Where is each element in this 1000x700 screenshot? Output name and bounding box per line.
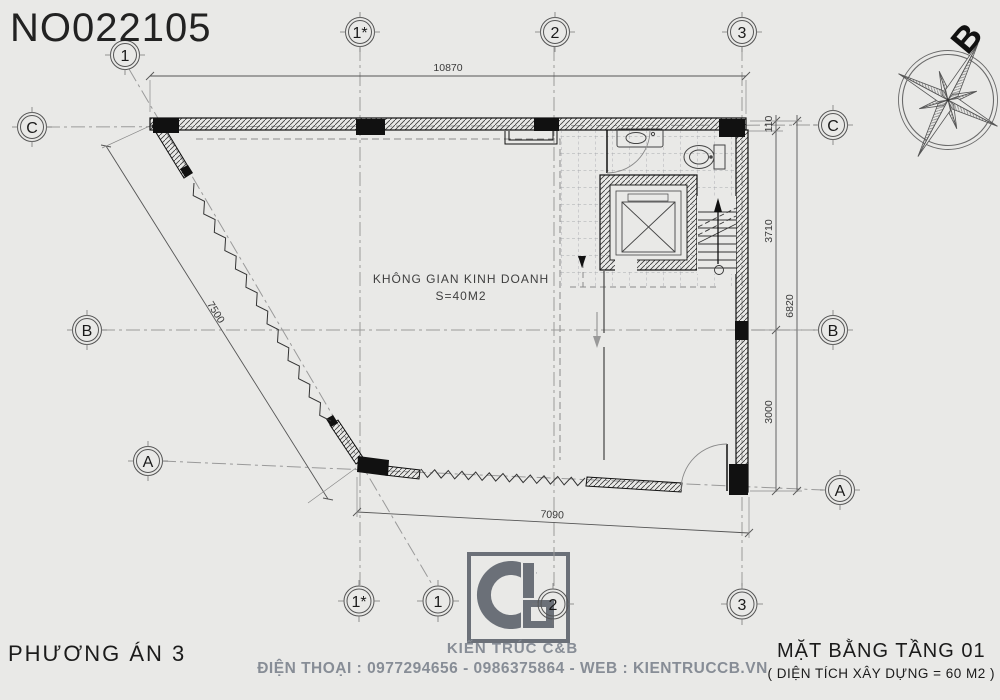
dimension-3000: 3000 xyxy=(763,400,775,424)
footer-center: KIẾN TRÚC C&B ĐIỆN THOẠI : 0977294656 - … xyxy=(240,640,785,678)
svg-text:B: B xyxy=(828,323,839,340)
grid-bubble-bottom-2: 2 xyxy=(532,583,574,625)
svg-text:2: 2 xyxy=(551,25,560,42)
upper-floor-projection xyxy=(196,139,560,460)
dimension-bottom xyxy=(353,477,753,538)
sheet-subtitle: ( DIỆN TÍCH XÂY DỰNG = 60 M2 ) xyxy=(768,666,995,681)
grid-bubble-top-2: 2 xyxy=(535,12,575,52)
axis-a xyxy=(162,461,823,490)
grid-bubble-top-3: 3 xyxy=(722,12,762,52)
grid-bubble-bottom-3: 3 xyxy=(721,583,763,625)
svg-text:A: A xyxy=(835,483,846,500)
grid-bubble-bottom-1: 1 xyxy=(417,580,459,622)
grid-bubble-right-c: C xyxy=(813,105,853,145)
scheme-label: PHƯƠNG ÁN 3 xyxy=(8,641,186,667)
grid-bubbles: 1 1* 2 3 1* xyxy=(12,12,860,625)
down-arrow-icon xyxy=(593,336,601,348)
sheet-title: MẶT BẰNG TẦNG 01 xyxy=(768,640,995,663)
dimension-3710: 3710 xyxy=(763,219,775,243)
sheet-title-block: MẶT BẰNG TẦNG 01 ( DIỆN TÍCH XÂY DỰNG = … xyxy=(768,640,995,681)
zigzag-bottom-facade xyxy=(421,469,585,486)
compass-rose: B xyxy=(869,15,1000,183)
svg-text:3: 3 xyxy=(738,25,747,42)
contact-info: ĐIỆN THOẠI : 0977294656 - 0986375864 - W… xyxy=(240,660,785,678)
entrance-door-swing xyxy=(681,444,727,490)
dimension-diagonal-value: 7500 xyxy=(204,299,227,325)
grid-bubble-bottom-1s: 1* xyxy=(338,580,380,622)
column-top-3 xyxy=(719,119,745,137)
column-top-2 xyxy=(534,118,559,131)
drawing-sheet: NO022105 xyxy=(0,0,1000,700)
svg-text:B: B xyxy=(82,323,93,340)
dimension-110: 110 xyxy=(763,115,775,132)
right-wall xyxy=(736,130,748,492)
grid-bubble-top-1s: 1* xyxy=(340,12,380,52)
grid-bubble-left-a: A xyxy=(128,441,168,481)
grid-bubble-left-c: C xyxy=(12,107,52,147)
bottom-wall-right-segment xyxy=(586,477,682,492)
svg-text:1*: 1* xyxy=(351,594,366,611)
floor-plan: 10870 7500 110 xyxy=(0,0,1000,700)
grid-bubble-right-a: A xyxy=(820,470,860,510)
top-wall xyxy=(150,118,746,130)
svg-text:2: 2 xyxy=(549,597,558,614)
dimension-top xyxy=(146,72,750,114)
grid-bubble-left-b: B xyxy=(67,310,107,350)
svg-text:C: C xyxy=(827,118,839,135)
drawing-number: NO022105 xyxy=(10,6,211,51)
elevator-shaft xyxy=(600,175,697,272)
svg-text:A: A xyxy=(143,454,154,471)
svg-text:1*: 1* xyxy=(352,25,367,42)
column-bottom-right xyxy=(729,464,748,495)
svg-text:3: 3 xyxy=(738,597,747,614)
grid-bubble-right-b: B xyxy=(813,310,853,350)
stairs xyxy=(697,196,736,275)
room-area: S=40M2 xyxy=(435,289,486,303)
room-name: KHÔNG GIAN KINH DOANH xyxy=(373,271,549,286)
dimension-6820: 6820 xyxy=(784,294,796,318)
column-bottom-left xyxy=(357,456,389,476)
elevator-door-opening xyxy=(615,259,637,272)
column-right-b xyxy=(735,321,748,340)
niche xyxy=(505,131,557,144)
dimension-top-value: 10870 xyxy=(433,62,462,74)
svg-text:C: C xyxy=(26,120,38,137)
company-name: KIẾN TRÚC C&B xyxy=(240,640,785,657)
bottom-wall-left-segment xyxy=(385,466,420,479)
svg-text:1: 1 xyxy=(434,594,443,611)
column-top-1s xyxy=(356,119,385,135)
dimension-bottom-value: 7090 xyxy=(540,508,564,521)
dimension-diagonal xyxy=(101,124,356,503)
column-top-1 xyxy=(153,118,179,133)
